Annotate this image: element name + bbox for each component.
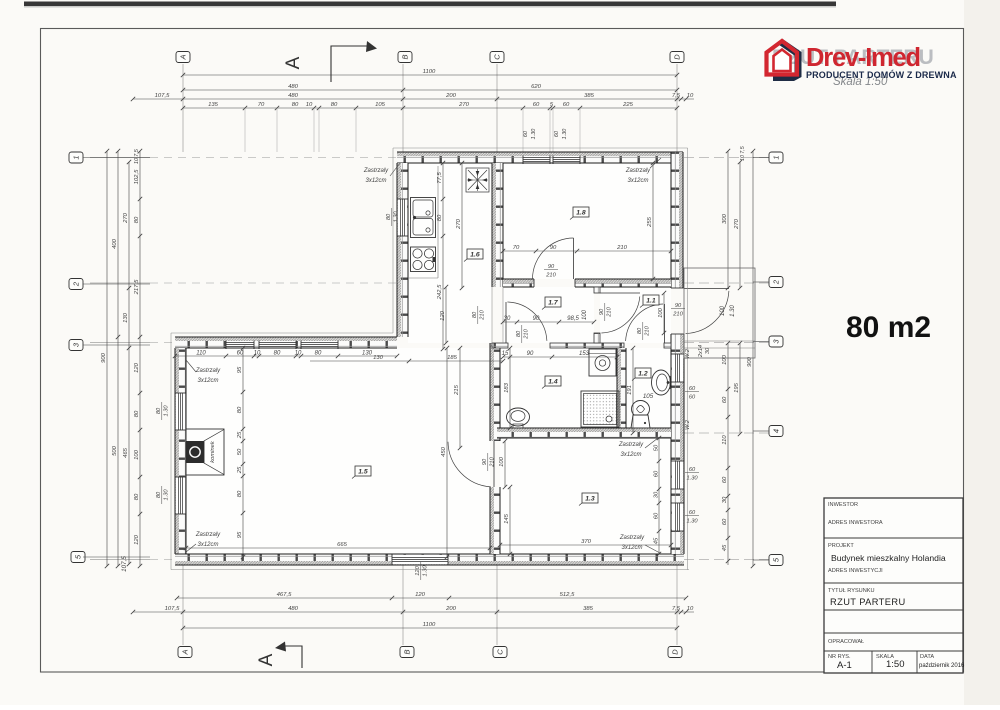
svg-text:30: 30: [705, 347, 711, 354]
svg-text:135: 135: [208, 102, 219, 108]
svg-text:60: 60: [689, 467, 696, 473]
svg-text:120: 120: [134, 362, 140, 373]
svg-text:ADRES INWESTYCJI: ADRES INWESTYCJI: [828, 568, 883, 574]
svg-text:1.8: 1.8: [576, 209, 586, 216]
svg-text:500: 500: [112, 445, 118, 456]
svg-text:145: 145: [504, 513, 510, 524]
svg-text:2: 2: [71, 281, 80, 287]
svg-text:80: 80: [437, 214, 443, 221]
svg-text:Drev-Imed: Drev-Imed: [806, 44, 920, 72]
svg-text:191: 191: [627, 385, 633, 395]
svg-text:270: 270: [123, 212, 129, 224]
svg-text:C: C: [492, 54, 501, 60]
svg-text:W.2: W.2: [685, 419, 691, 430]
svg-text:480: 480: [288, 84, 299, 90]
svg-text:120: 120: [415, 592, 426, 598]
svg-text:50: 50: [653, 444, 659, 451]
svg-text:512,5: 512,5: [560, 592, 575, 598]
svg-text:7,5: 7,5: [740, 145, 746, 153]
svg-text:60: 60: [722, 518, 728, 525]
svg-text:95: 95: [237, 531, 243, 538]
svg-text:1.30: 1.30: [686, 519, 698, 525]
svg-text:110: 110: [196, 350, 206, 356]
svg-text:100: 100: [722, 354, 728, 365]
svg-text:153: 153: [579, 351, 590, 357]
svg-text:90: 90: [533, 316, 540, 322]
svg-text:1.4: 1.4: [548, 378, 558, 385]
svg-text:110: 110: [722, 435, 728, 445]
svg-text:Zastrzaly: Zastrzaly: [619, 535, 645, 541]
svg-text:1: 1: [71, 155, 80, 159]
svg-text:183: 183: [504, 382, 510, 393]
svg-text:7,5: 7,5: [672, 606, 681, 612]
svg-text:1.6: 1.6: [470, 251, 480, 258]
svg-text:60: 60: [689, 395, 696, 401]
svg-text:1.30: 1.30: [531, 128, 537, 140]
svg-text:Zastrzaly: Zastrzaly: [618, 442, 644, 448]
svg-text:październik 2016: październik 2016: [919, 663, 965, 669]
svg-text:900: 900: [101, 352, 107, 363]
svg-text:60: 60: [533, 102, 540, 108]
svg-text:OPRACOWAŁ: OPRACOWAŁ: [828, 639, 864, 645]
svg-text:120: 120: [134, 534, 140, 545]
svg-text:102,5: 102,5: [134, 169, 140, 184]
svg-text:80: 80: [637, 327, 643, 334]
svg-text:90: 90: [482, 458, 488, 465]
svg-text:105: 105: [375, 102, 386, 108]
svg-text:DATA: DATA: [920, 654, 934, 660]
svg-text:210: 210: [524, 328, 530, 339]
svg-text:98,5: 98,5: [567, 316, 579, 322]
svg-text:3x12cm: 3x12cm: [627, 178, 648, 184]
svg-text:80: 80: [237, 490, 243, 497]
svg-text:A: A: [256, 653, 277, 666]
svg-text:120: 120: [415, 565, 421, 575]
svg-text:3x12cm: 3x12cm: [197, 378, 218, 384]
svg-text:80: 80: [134, 410, 140, 417]
svg-text:70: 70: [513, 245, 520, 251]
svg-text:RZUT PARTERU: RZUT PARTERU: [830, 597, 906, 607]
svg-text:60: 60: [722, 476, 728, 483]
svg-text:100: 100: [582, 309, 588, 320]
svg-text:30: 30: [504, 316, 511, 322]
svg-text:45: 45: [653, 537, 659, 544]
svg-text:kominek: kominek: [210, 440, 216, 463]
svg-text:60: 60: [523, 130, 529, 137]
svg-text:210: 210: [545, 273, 556, 279]
svg-text:130: 130: [373, 355, 384, 361]
svg-text:3x12cm: 3x12cm: [621, 545, 642, 551]
svg-text:215: 215: [454, 384, 460, 396]
svg-text:90: 90: [550, 245, 557, 251]
svg-text:80: 80: [274, 350, 281, 356]
svg-text:A: A: [283, 56, 304, 69]
svg-text:60: 60: [653, 470, 659, 477]
svg-text:Zastrzaly: Zastrzaly: [625, 168, 651, 174]
svg-text:200: 200: [445, 606, 457, 612]
svg-text:25: 25: [237, 431, 243, 439]
svg-text:50: 50: [237, 448, 243, 455]
svg-text:620: 620: [531, 84, 542, 90]
svg-text:60: 60: [689, 510, 696, 516]
svg-text:60: 60: [237, 350, 244, 356]
svg-text:1.30: 1.30: [164, 405, 170, 417]
svg-text:80: 80: [156, 491, 162, 498]
svg-text:210: 210: [645, 325, 651, 336]
svg-text:107,5: 107,5: [155, 93, 170, 99]
svg-text:7,5: 7,5: [134, 148, 140, 157]
svg-text:100: 100: [499, 456, 505, 467]
svg-text:60: 60: [689, 386, 696, 392]
svg-text:45: 45: [722, 544, 728, 551]
svg-text:80 m2: 80 m2: [846, 311, 931, 344]
svg-text:80: 80: [315, 350, 322, 356]
svg-text:480: 480: [288, 606, 299, 612]
svg-text:7,5: 7,5: [672, 93, 681, 99]
svg-text:TYTUŁ RYSUNKU: TYTUŁ RYSUNKU: [828, 588, 875, 594]
svg-text:A-1: A-1: [837, 660, 852, 671]
svg-text:225: 225: [622, 102, 634, 108]
svg-text:1.2: 1.2: [638, 370, 648, 377]
svg-text:95: 95: [237, 366, 243, 373]
svg-text:60: 60: [563, 102, 570, 108]
svg-text:10: 10: [295, 350, 302, 356]
svg-text:1.7: 1.7: [548, 299, 559, 306]
svg-text:1.30: 1.30: [562, 128, 568, 140]
svg-text:217,5: 217,5: [134, 279, 140, 295]
svg-text:Zastrzaly: Zastrzaly: [195, 368, 221, 374]
svg-text:4: 4: [771, 429, 780, 433]
svg-text:10: 10: [306, 102, 313, 108]
svg-text:370: 370: [581, 539, 592, 545]
svg-text:100: 100: [658, 307, 664, 318]
svg-text:1.30: 1.30: [164, 489, 170, 501]
svg-text:1:50: 1:50: [886, 659, 905, 670]
svg-text:3x12cm: 3x12cm: [197, 542, 218, 548]
svg-text:210: 210: [672, 312, 683, 318]
svg-text:480: 480: [288, 93, 299, 99]
svg-text:385: 385: [583, 606, 594, 612]
svg-text:3x12cm: 3x12cm: [620, 452, 641, 458]
svg-text:1100: 1100: [423, 69, 436, 75]
svg-text:80: 80: [134, 493, 140, 500]
svg-text:Zastrzaly: Zastrzaly: [363, 168, 389, 174]
svg-text:450: 450: [441, 446, 447, 457]
svg-text:W.2: W.2: [685, 348, 691, 359]
svg-text:105: 105: [643, 393, 654, 400]
svg-text:80: 80: [156, 407, 162, 414]
svg-text:C: C: [495, 649, 504, 655]
svg-text:100: 100: [720, 305, 726, 316]
svg-text:100: 100: [134, 449, 140, 460]
svg-text:1100: 1100: [423, 622, 436, 628]
svg-text:D: D: [670, 649, 679, 655]
svg-text:Budynek mieszkalny Holandia: Budynek mieszkalny Holandia: [831, 553, 946, 563]
svg-text:70: 70: [258, 102, 265, 108]
svg-text:80: 80: [472, 311, 478, 318]
svg-text:2: 2: [771, 279, 780, 285]
svg-text:60: 60: [554, 130, 560, 137]
svg-text:107,5: 107,5: [165, 606, 180, 612]
svg-text:465: 465: [123, 447, 129, 458]
svg-text:185: 185: [447, 355, 458, 361]
svg-text:80: 80: [237, 406, 243, 413]
svg-text:25: 25: [237, 466, 243, 474]
svg-text:1.30: 1.30: [394, 211, 400, 223]
svg-text:1.30: 1.30: [686, 476, 698, 482]
svg-text:A: A: [180, 649, 189, 655]
svg-text:1.30: 1.30: [423, 565, 429, 577]
svg-text:385: 385: [584, 93, 595, 99]
svg-text:90: 90: [599, 308, 605, 315]
svg-text:130: 130: [123, 312, 129, 323]
svg-text:467,5: 467,5: [277, 592, 292, 598]
svg-text:195: 195: [734, 382, 740, 393]
svg-text:10: 10: [687, 606, 694, 612]
svg-text:242,5: 242,5: [437, 284, 443, 300]
svg-text:1: 1: [771, 155, 780, 159]
svg-text:B: B: [400, 54, 409, 59]
svg-text:10: 10: [687, 93, 694, 99]
svg-text:B: B: [402, 649, 411, 654]
svg-text:300: 300: [722, 213, 728, 224]
svg-text:210: 210: [480, 309, 486, 320]
svg-text:A: A: [178, 54, 187, 60]
svg-text:80: 80: [516, 330, 522, 337]
svg-text:90: 90: [527, 351, 534, 357]
svg-text:120: 120: [440, 310, 446, 321]
svg-text:80: 80: [134, 216, 140, 223]
svg-text:1.1: 1.1: [646, 297, 656, 304]
svg-text:255: 255: [647, 216, 653, 228]
svg-text:210: 210: [616, 245, 628, 251]
svg-text:200: 200: [445, 93, 457, 99]
svg-text:1.5: 1.5: [358, 468, 368, 475]
svg-text:80: 80: [292, 102, 299, 108]
svg-text:Zastrzaly: Zastrzaly: [195, 532, 221, 538]
svg-text:15: 15: [502, 351, 509, 357]
svg-text:270: 270: [458, 102, 470, 108]
svg-text:210: 210: [490, 456, 496, 467]
svg-text:665: 665: [337, 542, 348, 548]
svg-text:60: 60: [653, 512, 659, 519]
svg-text:90: 90: [675, 303, 682, 309]
svg-text:90: 90: [548, 264, 555, 270]
svg-text:30: 30: [722, 496, 728, 503]
svg-text:1.30: 1.30: [730, 305, 736, 317]
svg-text:30: 30: [653, 491, 659, 498]
svg-text:77,5: 77,5: [437, 172, 443, 184]
svg-text:400: 400: [112, 238, 118, 249]
svg-text:210: 210: [607, 306, 613, 317]
svg-text:ADRES INWESTORA: ADRES INWESTORA: [828, 520, 883, 526]
svg-text:60: 60: [722, 396, 728, 403]
svg-text:10: 10: [134, 157, 140, 164]
svg-text:270: 270: [734, 218, 740, 230]
svg-text:80: 80: [331, 102, 338, 108]
svg-text:INWESTOR: INWESTOR: [828, 502, 858, 508]
svg-text:10: 10: [740, 155, 746, 161]
svg-text:10: 10: [254, 350, 261, 356]
svg-text:D: D: [672, 54, 681, 60]
svg-text:3x12cm: 3x12cm: [365, 178, 386, 184]
svg-text:80: 80: [386, 213, 392, 220]
svg-text:PROJEKT: PROJEKT: [828, 543, 854, 549]
svg-text:130: 130: [362, 350, 373, 356]
svg-text:270: 270: [456, 218, 462, 230]
svg-text:107,5: 107,5: [121, 556, 128, 572]
svg-text:2x14: 2x14: [698, 345, 704, 358]
svg-text:1.3: 1.3: [585, 495, 595, 502]
svg-text:PRODUCENT DOMÓW Z DREWNA: PRODUCENT DOMÓW Z DREWNA: [806, 69, 957, 80]
